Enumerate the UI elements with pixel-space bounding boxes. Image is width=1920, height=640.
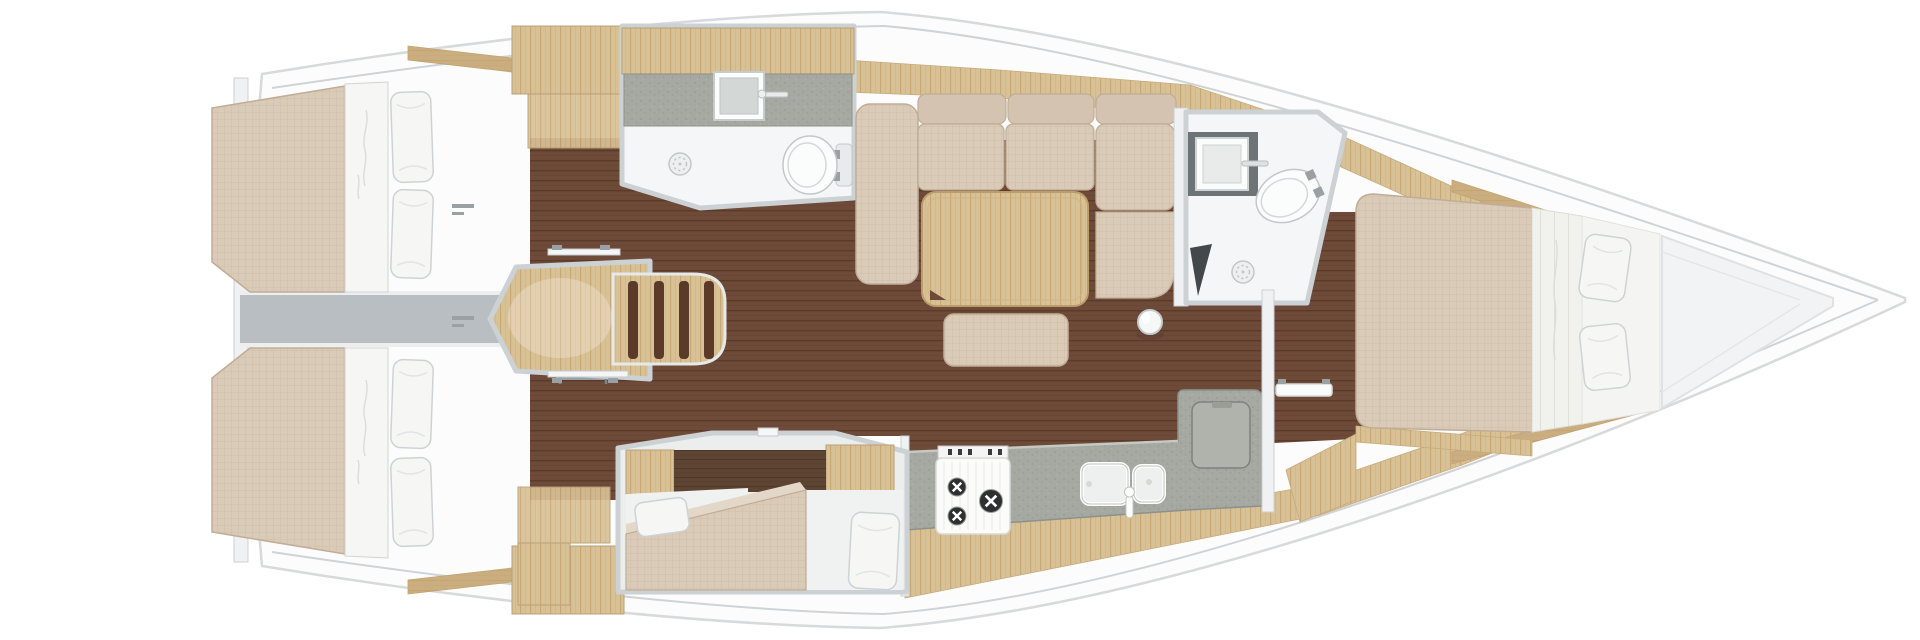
head-port — [622, 26, 854, 208]
locker — [518, 487, 610, 543]
locker — [528, 94, 624, 148]
berth-mattress — [212, 86, 345, 292]
stove — [936, 446, 1010, 534]
fridge — [1192, 402, 1250, 468]
pillow — [390, 91, 433, 182]
faucet — [1126, 496, 1133, 518]
cabinet — [626, 450, 674, 494]
berth-mattress — [1356, 194, 1532, 432]
settee-back-cushions — [918, 94, 1176, 124]
transom-passage — [240, 293, 528, 345]
cabin-mid-starboard — [618, 428, 907, 592]
pillow — [848, 512, 900, 590]
shower-drain-icon — [1232, 261, 1254, 283]
shower-drain-icon — [669, 153, 691, 175]
locker-step — [518, 543, 570, 605]
salon-table — [922, 192, 1088, 306]
door-hinge — [758, 428, 778, 436]
yacht-floor-plan — [0, 0, 1920, 640]
pillow — [390, 359, 433, 448]
cabinet — [826, 445, 894, 493]
pillow — [390, 189, 433, 278]
aft-wall-panel — [674, 450, 826, 492]
toilet — [783, 136, 852, 194]
berth-mattress — [212, 348, 345, 554]
pillow — [634, 497, 690, 538]
settee-chaise — [856, 104, 918, 284]
mast-post — [1136, 310, 1164, 340]
pillow — [1579, 323, 1631, 391]
berth-runner — [345, 348, 388, 558]
wardrobe — [512, 26, 624, 94]
faucet — [1242, 161, 1268, 166]
pillow — [1578, 233, 1632, 303]
fridge-wall — [1262, 290, 1274, 512]
ottoman — [944, 314, 1068, 366]
overhead-cabinet — [622, 28, 854, 74]
pillow — [390, 457, 433, 546]
floor-plan-canvas — [0, 0, 1920, 640]
